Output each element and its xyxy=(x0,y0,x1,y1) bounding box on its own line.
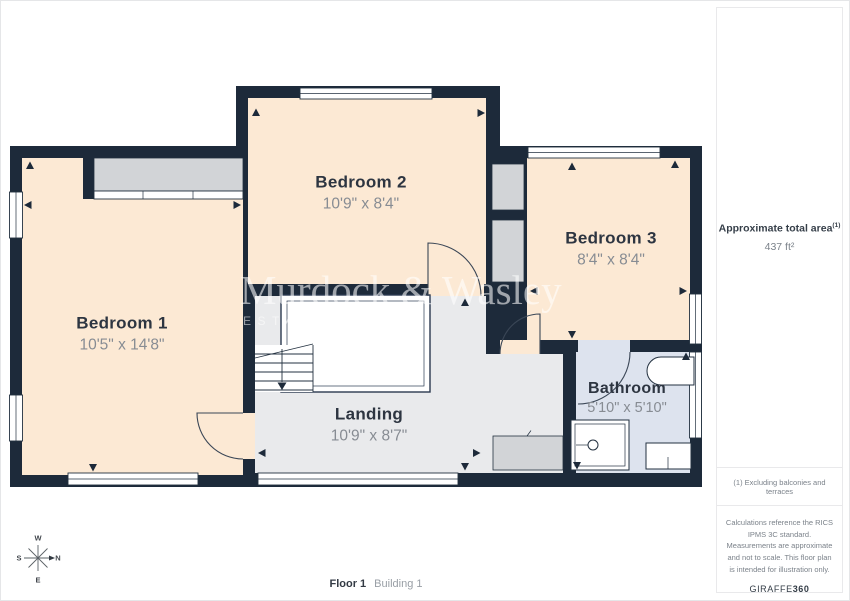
total-area-text: Approximate total area xyxy=(719,222,833,234)
room-name: Bedroom 1 xyxy=(76,314,168,334)
floor-caption: Floor 1Building 1 xyxy=(276,578,476,590)
total-area-value: 437 ft² xyxy=(765,241,795,253)
room-dimensions: 10'5" x 14'8" xyxy=(76,337,168,355)
compass-top-label: W xyxy=(34,534,41,543)
room-label-bedroom-1: Bedroom 1 10'5" x 14'8" xyxy=(76,314,168,355)
room-name: Bedroom 3 xyxy=(565,229,657,249)
compass-bottom-label: E xyxy=(35,576,40,585)
giraffe360-logo: GIRAFFE360 xyxy=(724,583,835,597)
footnote-text: (1) Excluding balconies and terraces xyxy=(722,478,837,496)
compass-right-label: N xyxy=(55,554,60,563)
room-dimensions: 10'9" x 8'7" xyxy=(331,428,407,446)
cupboard xyxy=(493,431,563,471)
brand-suffix: 360 xyxy=(793,584,810,594)
total-area-panel: Approximate total area(1) 437 ft² xyxy=(716,7,843,468)
room-name: Bedroom 2 xyxy=(315,173,407,193)
info-sidebar: Approximate total area(1) 437 ft² (1) Ex… xyxy=(716,7,843,593)
room-dimensions: 5'10" x 5'10" xyxy=(587,400,667,416)
compass-left-label: S xyxy=(16,554,21,563)
basin-unit xyxy=(646,443,691,469)
stairs xyxy=(255,344,313,392)
room-label-bedroom-2: Bedroom 2 10'9" x 8'4" xyxy=(315,173,407,214)
room-label-bedroom-3: Bedroom 3 8'4" x 8'4" xyxy=(565,229,657,270)
floor-label: Floor 1 xyxy=(330,578,367,590)
room-dimensions: 8'4" x 8'4" xyxy=(565,252,657,270)
compass-rose: W N E S xyxy=(12,530,64,584)
floor-plan: Bedroom 1 10'5" x 14'8" Bedroom 2 10'9" … xyxy=(0,0,716,601)
room-name: Bathroom xyxy=(587,380,667,398)
floor-plan-page: { "floor_plan": { "rooms": [ {"name": "B… xyxy=(0,0,850,601)
building-label: Building 1 xyxy=(374,578,422,590)
floor-plan-drawing xyxy=(0,0,716,601)
wardrobe xyxy=(83,158,243,199)
room-label-landing: Landing 10'9" x 8'7" xyxy=(331,405,407,446)
footnote-panel: (1) Excluding balconies and terraces xyxy=(716,467,843,506)
room-name: Landing xyxy=(331,405,407,425)
disclaimer-text: Calculations reference the RICS IPMS 3C … xyxy=(724,517,835,575)
footnote-marker: (1) xyxy=(832,222,840,229)
room-dimensions: 10'9" x 8'4" xyxy=(315,196,407,214)
closets xyxy=(492,164,524,282)
total-area-label: Approximate total area(1) xyxy=(719,222,841,235)
brand-name: GIRAFFE xyxy=(749,584,792,594)
disclaimer-panel: Calculations reference the RICS IPMS 3C … xyxy=(716,505,843,593)
room-label-bathroom: Bathroom 5'10" x 5'10" xyxy=(587,380,667,416)
